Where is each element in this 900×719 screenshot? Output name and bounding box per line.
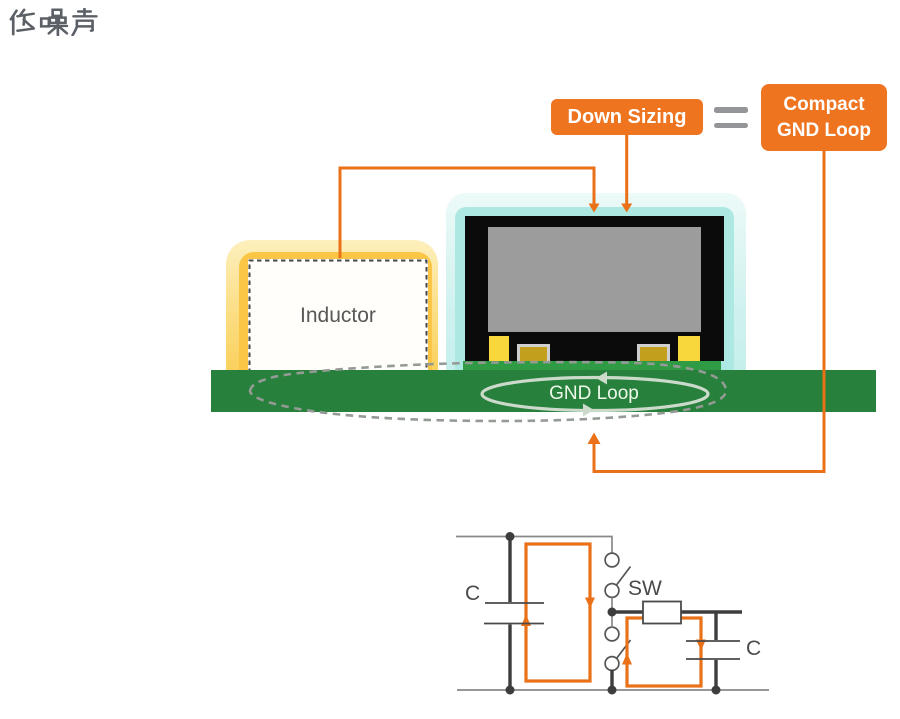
svg-text:C: C — [465, 582, 480, 605]
svg-text:C: C — [746, 637, 761, 660]
svg-text:SW: SW — [628, 577, 662, 600]
